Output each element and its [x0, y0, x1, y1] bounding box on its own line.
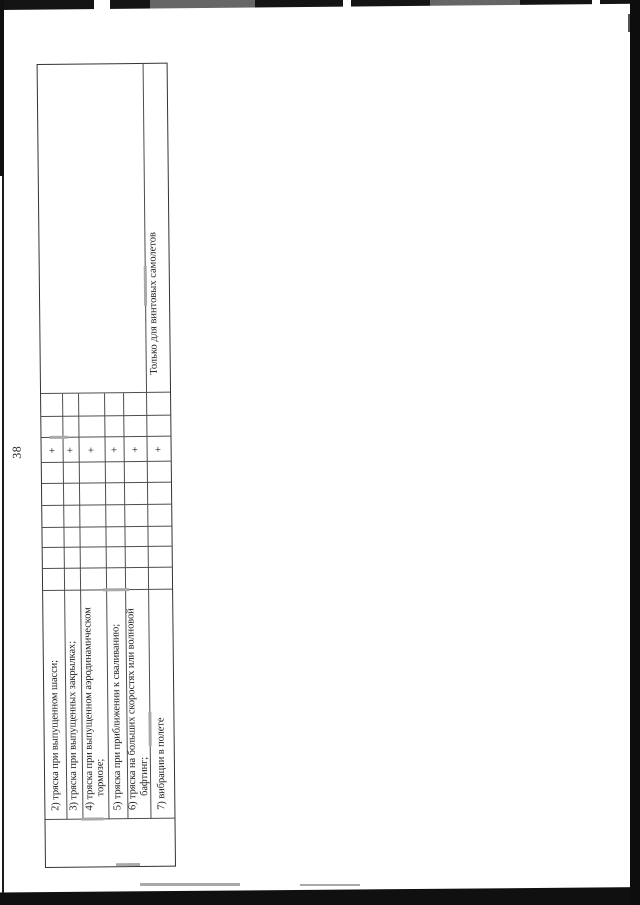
plus-mark: +	[42, 439, 63, 462]
table: 2) тряска при выпущенном шасси; 3) тряск…	[37, 63, 176, 868]
table-grid-line	[42, 526, 171, 528]
page-number: 38	[10, 439, 25, 465]
scan-bottom-edge	[0, 886, 640, 905]
scanned-page: { "page": { "number": "38" }, "table": {…	[0, 0, 640, 905]
scan-smear	[148, 712, 151, 746]
plus-mark: +	[79, 438, 105, 461]
table-row-label: 6) тряска на больших скоростях или волно…	[125, 591, 150, 818]
scan-top-edge-fade	[150, 0, 255, 10]
plus-mark: +	[105, 438, 124, 461]
row-label-text: 6) тряска на больших скоростях или волно…	[125, 608, 150, 810]
table-row-label: 2) тряска при выпущенном шасси;	[43, 592, 66, 819]
row-label-text: 2) тряска при выпущенном шасси;	[49, 660, 62, 811]
scan-smear	[81, 817, 103, 820]
scan-smear	[300, 884, 360, 886]
table-grid-line	[41, 415, 170, 417]
scan-top-edge-gap	[94, 0, 110, 11]
note-cell: Только для винтовых самолетов	[144, 63, 170, 392]
table-grid-line	[43, 546, 172, 548]
table-row-label: 4) тряска при выпущенном аэродинамическо…	[80, 591, 108, 818]
scan-smear	[144, 266, 147, 306]
table-row-label: 7) вибрации в полете	[148, 591, 174, 818]
table-grid-line	[42, 504, 171, 506]
scan-left-edge	[0, 0, 4, 176]
row-label-text: 7) вибрации в полете	[156, 718, 168, 810]
plus-mark: +	[124, 438, 147, 461]
plus-mark: +	[63, 439, 79, 462]
plus-mark: +	[147, 438, 171, 461]
row-label-text: 3) тряска при выпущенных закрылках;	[67, 641, 80, 811]
table-grid-line	[41, 392, 170, 394]
scan-smear	[49, 436, 67, 439]
table-grid-line	[42, 482, 171, 484]
scan-top-edge-gap	[343, 0, 351, 11]
row-label-text: 5) тряска при приближении к сваливанию;	[110, 624, 123, 810]
scan-speck	[628, 14, 630, 32]
scan-top-edge-fade	[430, 0, 520, 10]
scan-right-edge	[630, 0, 640, 905]
table-grid-line	[43, 567, 172, 569]
rotated-content: 38 2) тряска при выпущенном шасси; 3) тр…	[37, 63, 176, 868]
scan-smear	[140, 883, 240, 886]
scan-smear	[103, 588, 129, 591]
table-row-label: 5) тряска при приближении к сваливанию;	[106, 591, 127, 818]
scan-top-edge-gap	[592, 0, 600, 11]
scan-smear	[116, 863, 140, 866]
row-label-text: 4) тряска при выпущенном аэродинамическо…	[82, 607, 107, 810]
